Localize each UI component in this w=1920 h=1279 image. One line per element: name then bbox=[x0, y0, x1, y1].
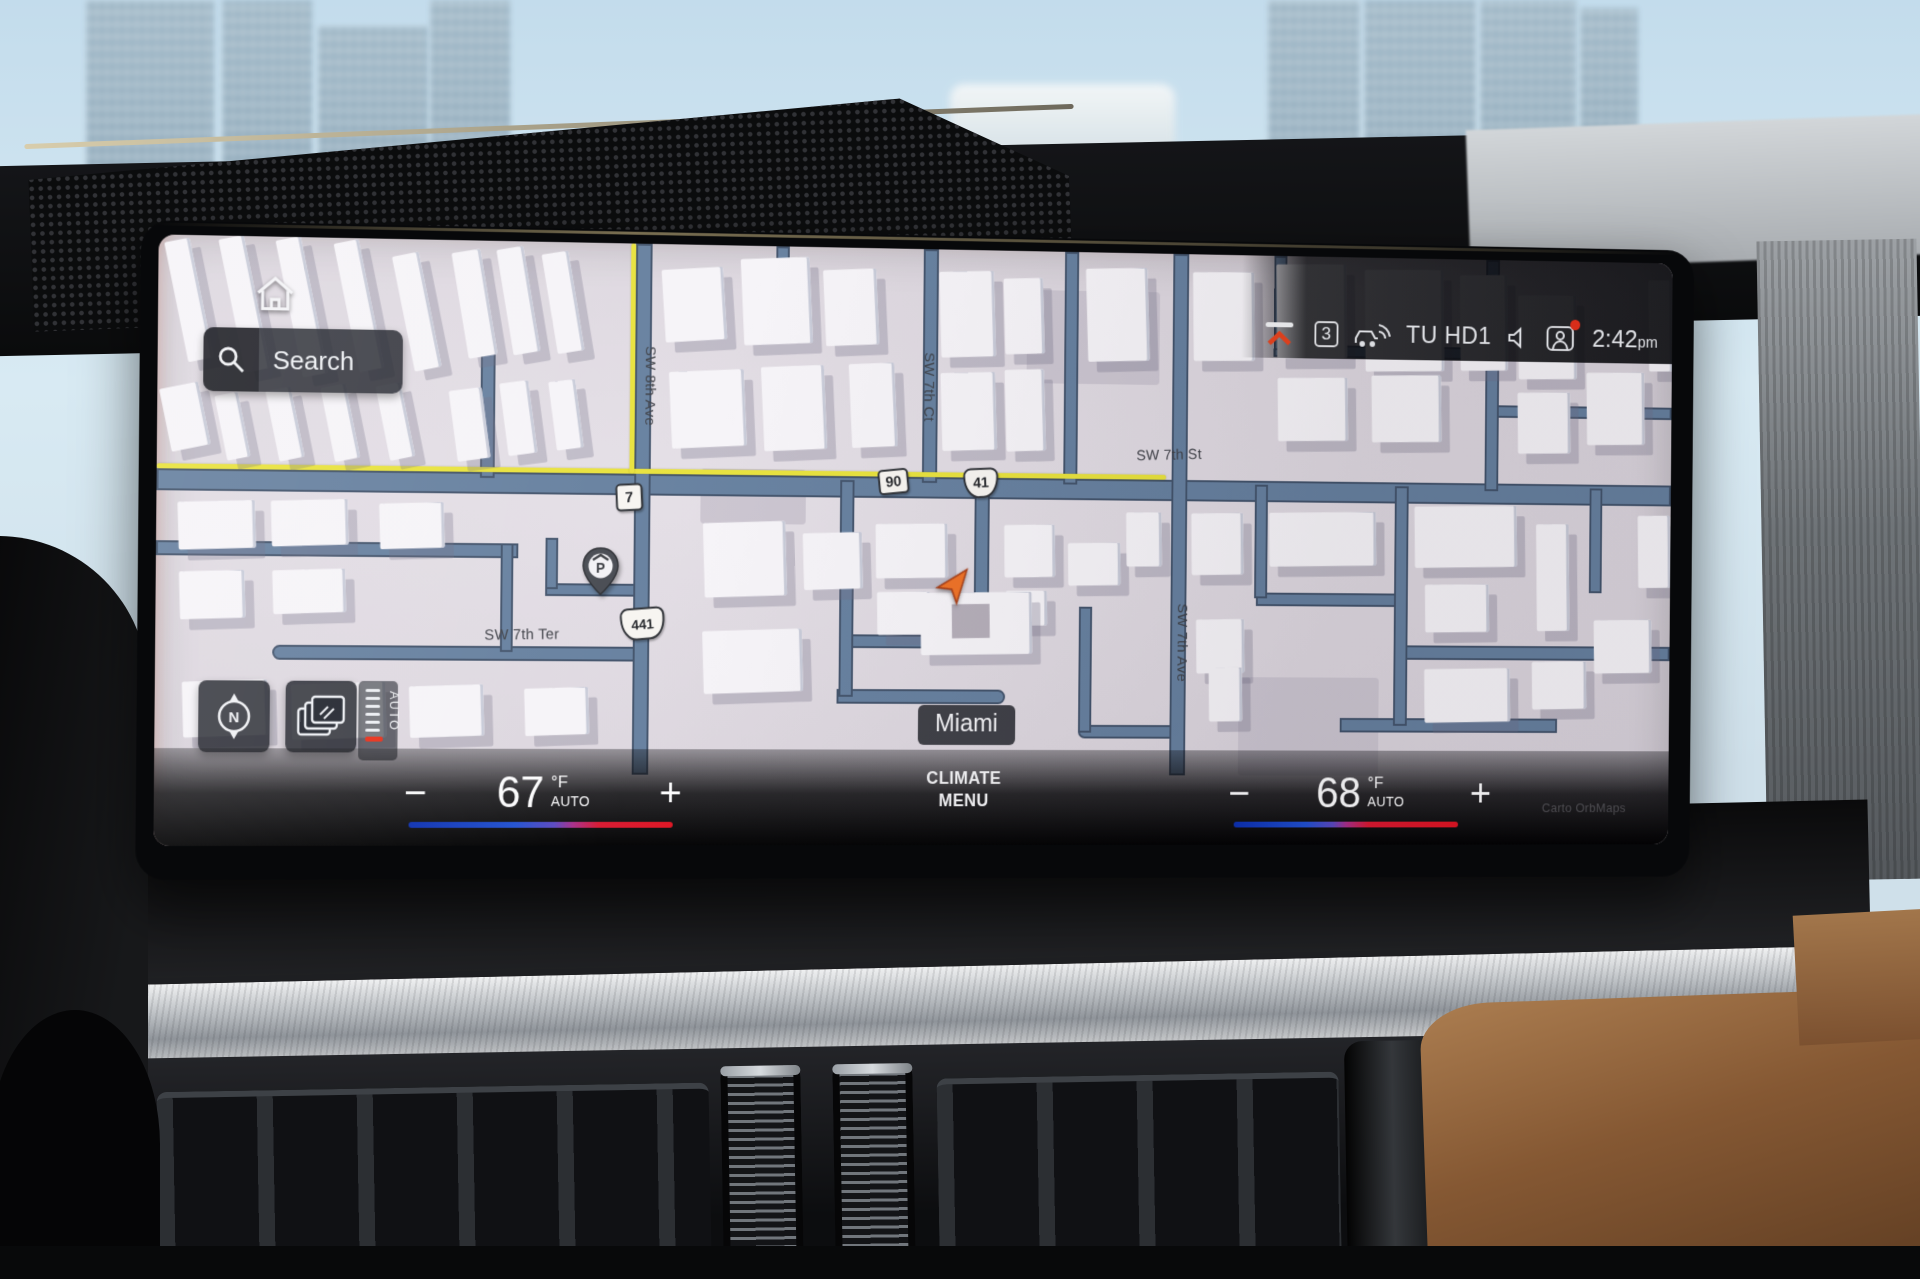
building bbox=[1004, 525, 1055, 578]
building bbox=[272, 568, 346, 614]
building bbox=[375, 382, 415, 461]
driver-temp-mode: AUTO bbox=[551, 793, 590, 809]
route-shield-us441: 441 bbox=[619, 606, 666, 642]
street-label: SW 7th St bbox=[1136, 446, 1202, 464]
building bbox=[179, 570, 246, 620]
building bbox=[379, 502, 445, 549]
building bbox=[940, 372, 997, 451]
building bbox=[159, 381, 211, 451]
map-canvas[interactable]: SW 7th St SW 7th Ter SW 8th Ave SW 7th C… bbox=[153, 234, 1672, 846]
building bbox=[1424, 668, 1510, 723]
radio-station-label: TU HD1 bbox=[1406, 322, 1491, 351]
building bbox=[803, 532, 863, 590]
road bbox=[1078, 725, 1177, 739]
svg-text:N: N bbox=[229, 709, 240, 726]
profile-icon bbox=[1546, 324, 1577, 353]
building bbox=[1004, 278, 1045, 354]
building bbox=[939, 271, 996, 358]
building bbox=[1269, 512, 1376, 567]
minimize-bar bbox=[1265, 322, 1293, 327]
passenger-temp-mode: AUTO bbox=[1367, 794, 1404, 809]
road bbox=[1256, 593, 1403, 608]
building bbox=[761, 365, 828, 452]
steering-wheel-rim[interactable] bbox=[0, 1010, 160, 1279]
building bbox=[1536, 524, 1570, 631]
climate-menu-button[interactable]: CLIMATE MENU bbox=[900, 767, 1027, 811]
building bbox=[1196, 619, 1245, 674]
zoom-level-marker bbox=[365, 737, 383, 742]
road bbox=[836, 689, 1005, 704]
dash-side-panel bbox=[1756, 239, 1920, 882]
building bbox=[920, 592, 1032, 655]
building bbox=[876, 523, 948, 578]
notification-dot bbox=[1570, 319, 1580, 330]
driver-temp-unit: °F bbox=[551, 774, 590, 791]
passenger-temp[interactable]: 68 °F AUTO bbox=[1316, 773, 1405, 815]
building bbox=[741, 257, 813, 346]
driver-temp[interactable]: 67 °F AUTO bbox=[496, 772, 590, 815]
home-icon bbox=[255, 274, 295, 313]
building bbox=[1068, 543, 1121, 586]
road bbox=[1063, 252, 1079, 485]
climate-menu-line2: MENU bbox=[900, 789, 1027, 811]
compass-button[interactable]: N bbox=[198, 680, 270, 752]
street-label: SW 8th Ave bbox=[641, 346, 658, 426]
search-bar[interactable]: Search bbox=[203, 327, 403, 394]
road bbox=[1393, 486, 1409, 726]
clock: 2:42 bbox=[1592, 324, 1638, 353]
road bbox=[1254, 485, 1268, 599]
street-label: SW 7th Ter bbox=[484, 626, 559, 644]
road bbox=[1169, 254, 1189, 775]
building bbox=[499, 380, 537, 456]
building bbox=[1209, 667, 1243, 721]
building bbox=[496, 246, 540, 356]
building-courtyard bbox=[952, 603, 990, 638]
building bbox=[524, 687, 589, 736]
street-label: SW 7th Ct bbox=[921, 352, 938, 421]
speaker-icon bbox=[1507, 325, 1531, 350]
home-button[interactable] bbox=[255, 274, 295, 313]
zoom-ticks bbox=[365, 689, 383, 755]
passenger-temp-value: 68 bbox=[1316, 773, 1361, 815]
city-label: Miami bbox=[918, 705, 1015, 745]
map-attribution: Carto OrbMaps bbox=[1542, 801, 1626, 815]
driver-temp-value: 67 bbox=[496, 772, 544, 815]
building bbox=[1191, 513, 1243, 575]
parking-pin-icon[interactable]: P bbox=[580, 546, 621, 598]
search-label: Search bbox=[273, 345, 355, 377]
road bbox=[1078, 607, 1092, 733]
building bbox=[214, 392, 250, 461]
building bbox=[703, 521, 787, 598]
building bbox=[849, 362, 898, 448]
building bbox=[669, 369, 747, 448]
building bbox=[542, 250, 585, 354]
climate-bar: − 67 °F AUTO + CLIMATE MENU bbox=[153, 748, 1668, 846]
photo-scene: SW 7th St SW 7th Ter SW 8th Ave SW 7th C… bbox=[0, 0, 1920, 1279]
clock-meridiem: pm bbox=[1638, 335, 1658, 351]
building bbox=[1532, 661, 1587, 709]
temp-up-button-left[interactable]: + bbox=[659, 774, 682, 813]
road bbox=[272, 645, 639, 662]
building bbox=[451, 249, 497, 359]
route-shield-fl7: 7 bbox=[615, 483, 643, 512]
building bbox=[1638, 516, 1671, 588]
building bbox=[823, 268, 879, 346]
road bbox=[545, 538, 558, 589]
building bbox=[271, 499, 349, 547]
status-bar[interactable]: 3 TU HD1 bbox=[1241, 255, 1672, 364]
map-layers-button[interactable] bbox=[285, 681, 357, 753]
minimize-control[interactable] bbox=[1265, 322, 1293, 346]
car-wifi-icon bbox=[1354, 320, 1391, 349]
building bbox=[1278, 378, 1349, 442]
building bbox=[662, 267, 728, 343]
notification-count-badge: 3 bbox=[1314, 321, 1338, 347]
street-label: SW 7th Ave bbox=[1174, 603, 1190, 681]
temp-gradient-left bbox=[409, 822, 673, 828]
leather-dash-upper bbox=[1793, 908, 1920, 1045]
building bbox=[1586, 373, 1644, 446]
temp-gradient-right bbox=[1234, 822, 1458, 828]
console-shadow bbox=[0, 1246, 1920, 1279]
layers-icon bbox=[296, 695, 346, 739]
passenger-temp-unit: °F bbox=[1368, 775, 1405, 791]
temp-down-button-right[interactable]: − bbox=[1228, 774, 1250, 813]
building bbox=[548, 379, 584, 451]
temp-up-button-right[interactable]: + bbox=[1470, 775, 1492, 813]
building bbox=[409, 684, 485, 738]
building bbox=[1414, 506, 1517, 568]
temp-down-button-left[interactable]: − bbox=[404, 773, 427, 813]
building bbox=[1594, 620, 1652, 674]
compass-icon: N bbox=[210, 692, 258, 740]
building bbox=[177, 500, 256, 550]
road bbox=[974, 481, 990, 607]
curved-display: SW 7th St SW 7th Ter SW 8th Ave SW 7th C… bbox=[135, 220, 1694, 880]
building bbox=[702, 628, 803, 694]
building bbox=[265, 386, 304, 461]
climate-menu-line1: CLIMATE bbox=[900, 767, 1027, 789]
chevron-up-icon bbox=[1266, 330, 1292, 345]
magnifier-icon bbox=[203, 327, 259, 392]
route-shield-us90: 90 bbox=[877, 467, 910, 495]
zoom-auto-label: AUTO bbox=[387, 691, 401, 754]
road bbox=[1589, 488, 1603, 593]
building bbox=[1086, 268, 1150, 362]
building bbox=[1126, 512, 1162, 566]
svg-text:P: P bbox=[596, 560, 605, 576]
building bbox=[1518, 393, 1571, 454]
building bbox=[1425, 584, 1489, 633]
building bbox=[1372, 375, 1442, 442]
building bbox=[320, 383, 360, 462]
building bbox=[1005, 369, 1047, 451]
